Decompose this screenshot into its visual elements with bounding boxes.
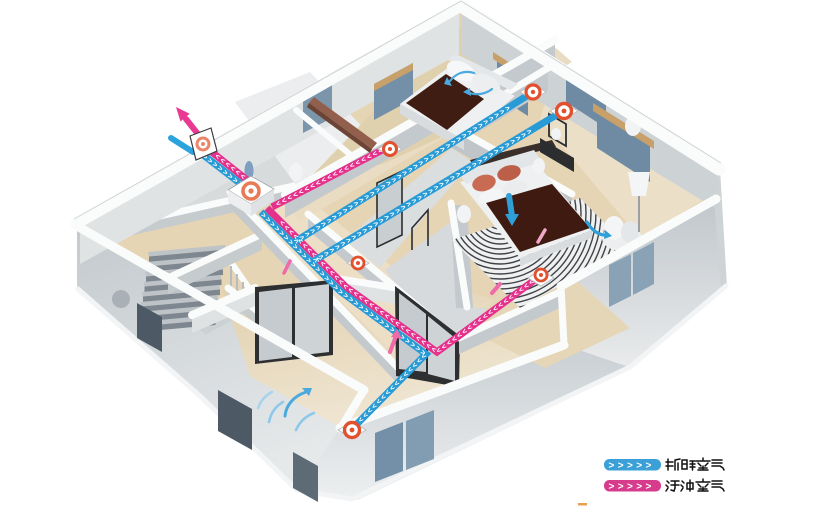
svg-text:>>>>>: >>>>> bbox=[609, 482, 655, 493]
svg-text:>>>>>: >>>>> bbox=[609, 461, 655, 472]
